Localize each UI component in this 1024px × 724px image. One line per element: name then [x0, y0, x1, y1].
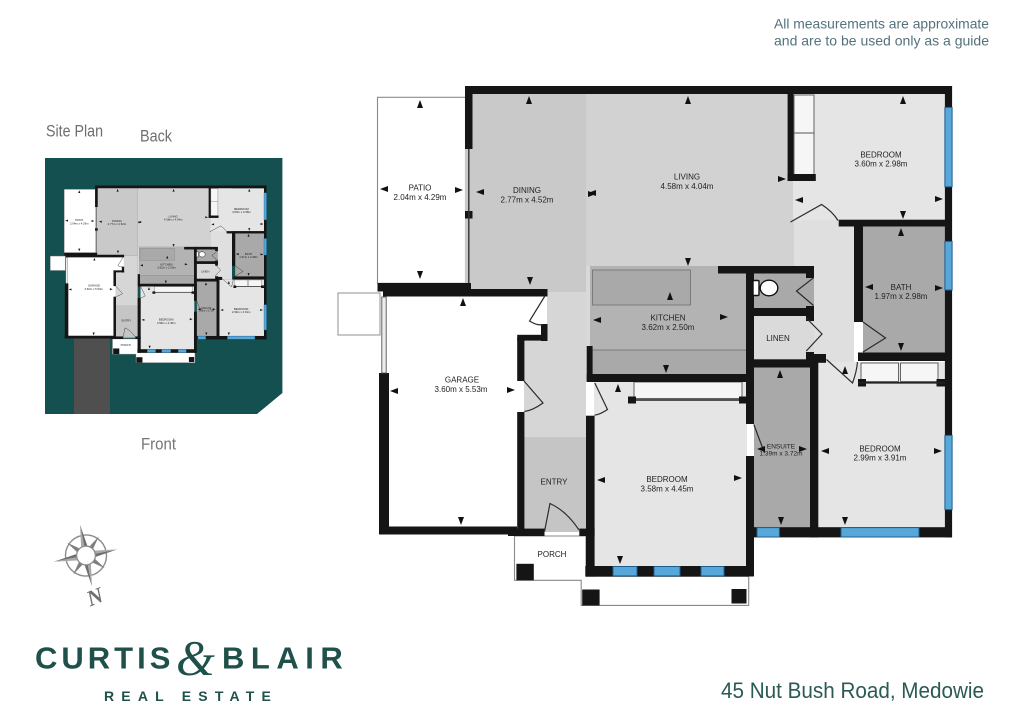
svg-text:and are to be used only as a g: and are to be used only as a guide — [774, 33, 989, 49]
svg-text:Back: Back — [140, 127, 172, 146]
svg-text:BLAIR: BLAIR — [222, 641, 349, 676]
svg-text:CURTIS: CURTIS — [35, 641, 174, 676]
svg-text:All measurements are approxima: All measurements are approximate — [774, 16, 989, 32]
svg-text:Front: Front — [141, 435, 176, 454]
svg-text:N: N — [82, 582, 108, 612]
svg-text:45 Nut Bush Road, Medowie: 45 Nut Bush Road, Medowie — [721, 678, 984, 703]
svg-text:&: & — [176, 630, 215, 686]
svg-text:REAL ESTATE: REAL ESTATE — [104, 688, 278, 704]
svg-text:Site Plan: Site Plan — [46, 122, 103, 141]
